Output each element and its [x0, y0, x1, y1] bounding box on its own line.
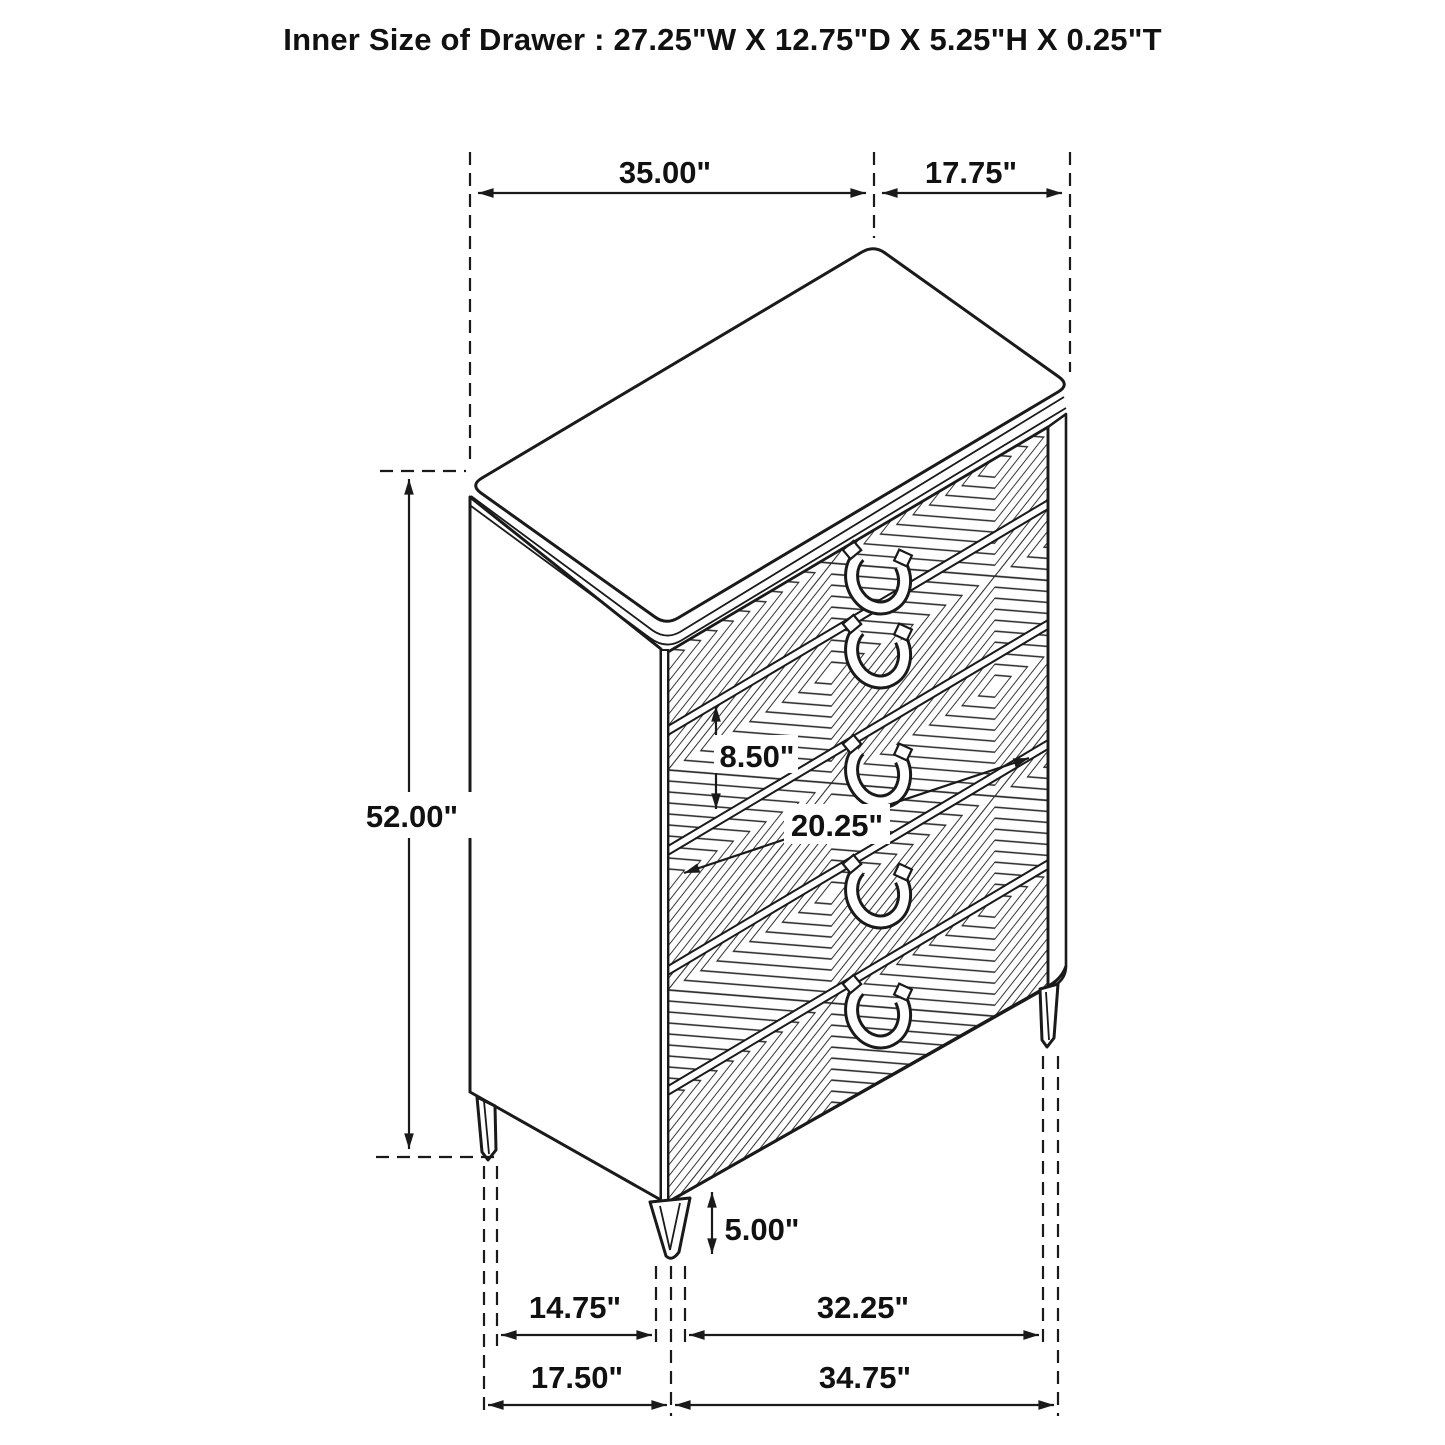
front-left-edge	[661, 650, 668, 1201]
dim-label-bottom-right-inner: 32.25"	[817, 1290, 909, 1325]
dim-label-bottom-left-inner: 14.75"	[529, 1290, 621, 1325]
right-leg	[1040, 984, 1058, 1047]
dim-label-top-depth: 17.75"	[925, 155, 1017, 190]
chest-dimension-diagram: 35.00" 17.75" 52.00" 8.50" 20.25" 5.00" …	[0, 0, 1445, 1445]
dim-label-leg-height: 5.00"	[724, 1212, 799, 1247]
dim-label-bottom-right-outer: 34.75"	[819, 1360, 911, 1395]
left-leg	[477, 1097, 496, 1160]
dim-label-overall-height: 52.00"	[366, 799, 458, 834]
diagram-page: Inner Size of Drawer : 27.25"W X 12.75"D…	[0, 0, 1445, 1445]
dim-label-drawer-height: 8.50"	[719, 739, 794, 774]
dim-label-bottom-left-outer: 17.50"	[531, 1360, 623, 1395]
dim-label-top-width: 35.00"	[619, 155, 711, 190]
front-leg	[650, 1198, 690, 1258]
front-right-stile	[1048, 414, 1066, 990]
dim-label-drawer-diagonal: 20.25"	[791, 808, 883, 843]
